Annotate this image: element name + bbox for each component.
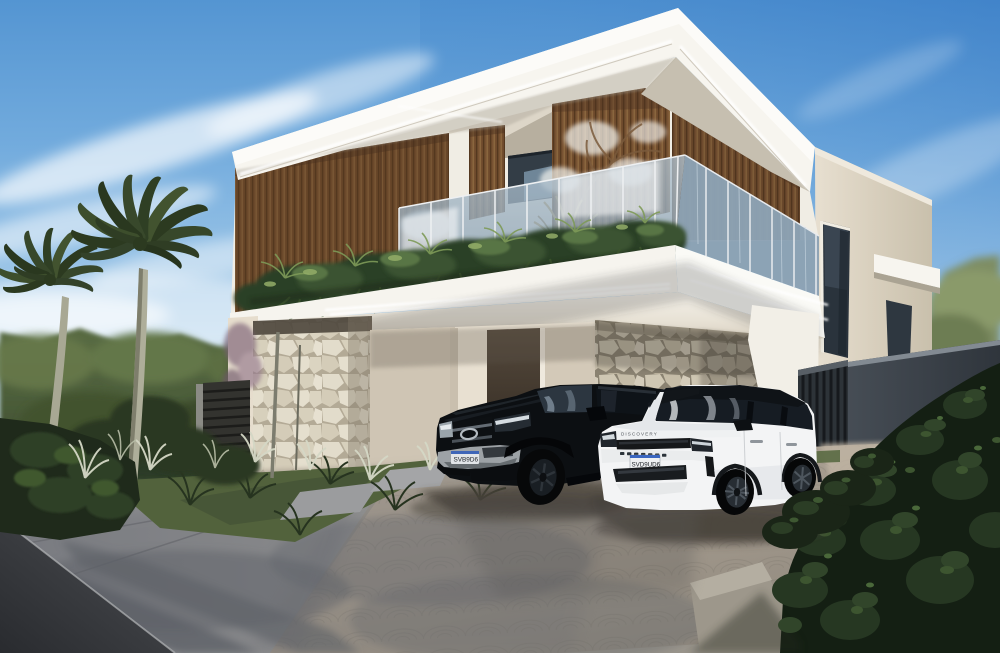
svg-text:SVB9D6: SVB9D6 [454,457,479,464]
svg-text:DISCOVERY: DISCOVERY [621,432,658,437]
